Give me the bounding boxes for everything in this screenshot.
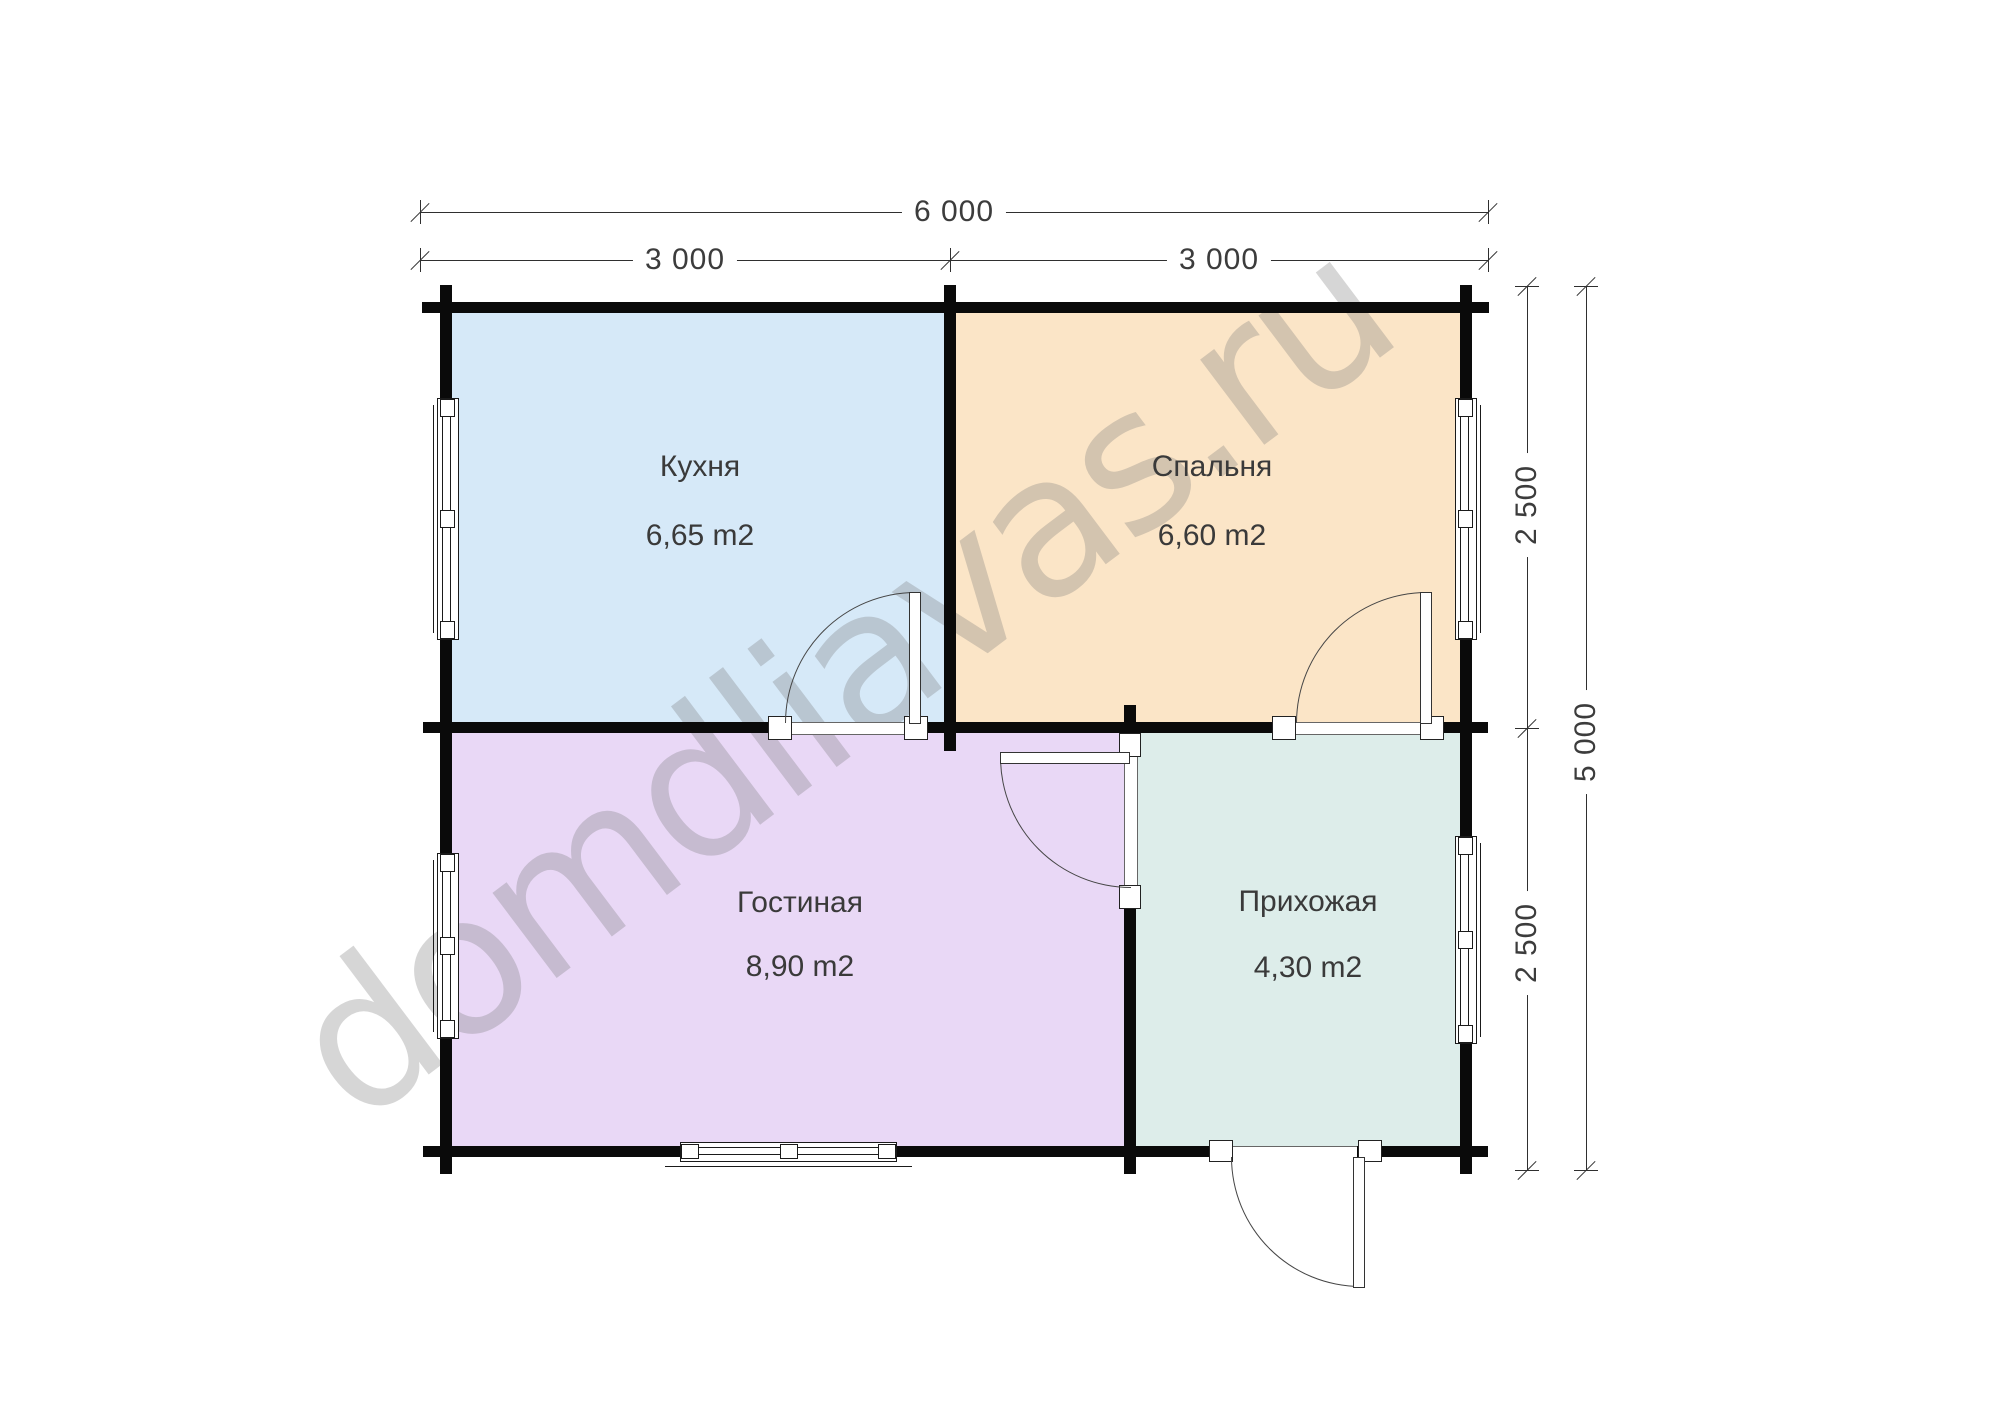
window-sill: [433, 405, 434, 633]
floor-plan: domdliavas.ru: [0, 0, 2000, 1414]
door-bedroom-jamb: [1272, 716, 1296, 740]
window-sill: [665, 1166, 912, 1167]
window-mullion: [440, 1020, 455, 1038]
window-mullion: [440, 621, 455, 639]
wall-stub: [1460, 1157, 1472, 1174]
window-mullion: [440, 937, 455, 955]
window-mullion: [440, 399, 455, 417]
wall-divider-kitchen-bedroom: [944, 302, 956, 733]
room-hallway-area: 4,30 m2: [1254, 951, 1362, 985]
window-sill: [433, 860, 434, 1032]
door-entrance-leaf: [1353, 1157, 1365, 1288]
dim-label-total-height: 5 000: [1569, 690, 1603, 794]
door-entrance-jamb: [1209, 1140, 1233, 1162]
window-living-bottom: [680, 1142, 897, 1162]
window-mullion: [1458, 510, 1473, 528]
wall-stub: [423, 1146, 440, 1157]
door-bedroom-opening: [1296, 722, 1423, 735]
dim-label-left-width: 3 000: [633, 243, 737, 277]
room-kitchen-label: Кухня: [660, 450, 740, 484]
room-living-label: Гостиная: [737, 886, 863, 920]
wall-stub: [440, 285, 452, 304]
window-mullion: [440, 510, 455, 528]
window-kitchen-left: [437, 398, 459, 640]
door-bedroom-leaf: [1420, 592, 1432, 724]
window-sill: [1480, 405, 1481, 633]
wall-stub: [1472, 722, 1488, 733]
window-mullion: [1458, 931, 1473, 949]
wall-stub: [1460, 285, 1472, 304]
room-hallway-label: Прихожая: [1238, 885, 1377, 919]
wall-stub: [1124, 705, 1136, 722]
window-mullion: [878, 1144, 896, 1159]
dim-label-lower-height: 2 500: [1510, 891, 1544, 995]
room-hallway-fill: [1130, 728, 1466, 1152]
window-sill: [1480, 843, 1481, 1037]
door-entrance-arc: [1231, 1157, 1361, 1287]
window-mullion: [1458, 399, 1473, 417]
wall-stub: [944, 733, 956, 751]
dim-line-half-widths: [420, 260, 1488, 261]
dim-label-total-width: 6 000: [902, 195, 1006, 229]
window-living-left: [437, 853, 459, 1039]
room-bedroom-label: Спальня: [1152, 450, 1273, 484]
window-mullion: [440, 854, 455, 872]
window-hallway-right: [1455, 836, 1477, 1044]
wall-stub: [422, 302, 440, 313]
door-kitchen-opening: [790, 722, 908, 735]
wall-stub: [1124, 1157, 1136, 1174]
wall-stub: [1472, 302, 1489, 313]
room-kitchen-area: 6,65 m2: [646, 519, 754, 553]
door-kitchen-leaf: [909, 592, 921, 724]
window-mullion: [1458, 1025, 1473, 1043]
wall-stub: [1472, 1146, 1488, 1157]
window-bedroom-right: [1455, 398, 1477, 640]
wall-stub: [440, 1157, 452, 1174]
dim-label-right-width: 3 000: [1167, 243, 1271, 277]
door-living-hallway-jamb: [1119, 885, 1141, 909]
window-mullion: [1458, 621, 1473, 639]
room-bedroom-area: 6,60 m2: [1158, 519, 1266, 553]
room-living-area: 8,90 m2: [746, 950, 854, 984]
wall-stub: [944, 285, 956, 302]
door-living-hallway-leaf: [1000, 752, 1130, 764]
dim-label-upper-height: 2 500: [1510, 453, 1544, 557]
wall-stub: [423, 722, 440, 733]
window-mullion: [1458, 837, 1473, 855]
wall-top: [440, 302, 1472, 313]
window-mullion: [780, 1144, 798, 1159]
window-mullion: [681, 1144, 699, 1159]
